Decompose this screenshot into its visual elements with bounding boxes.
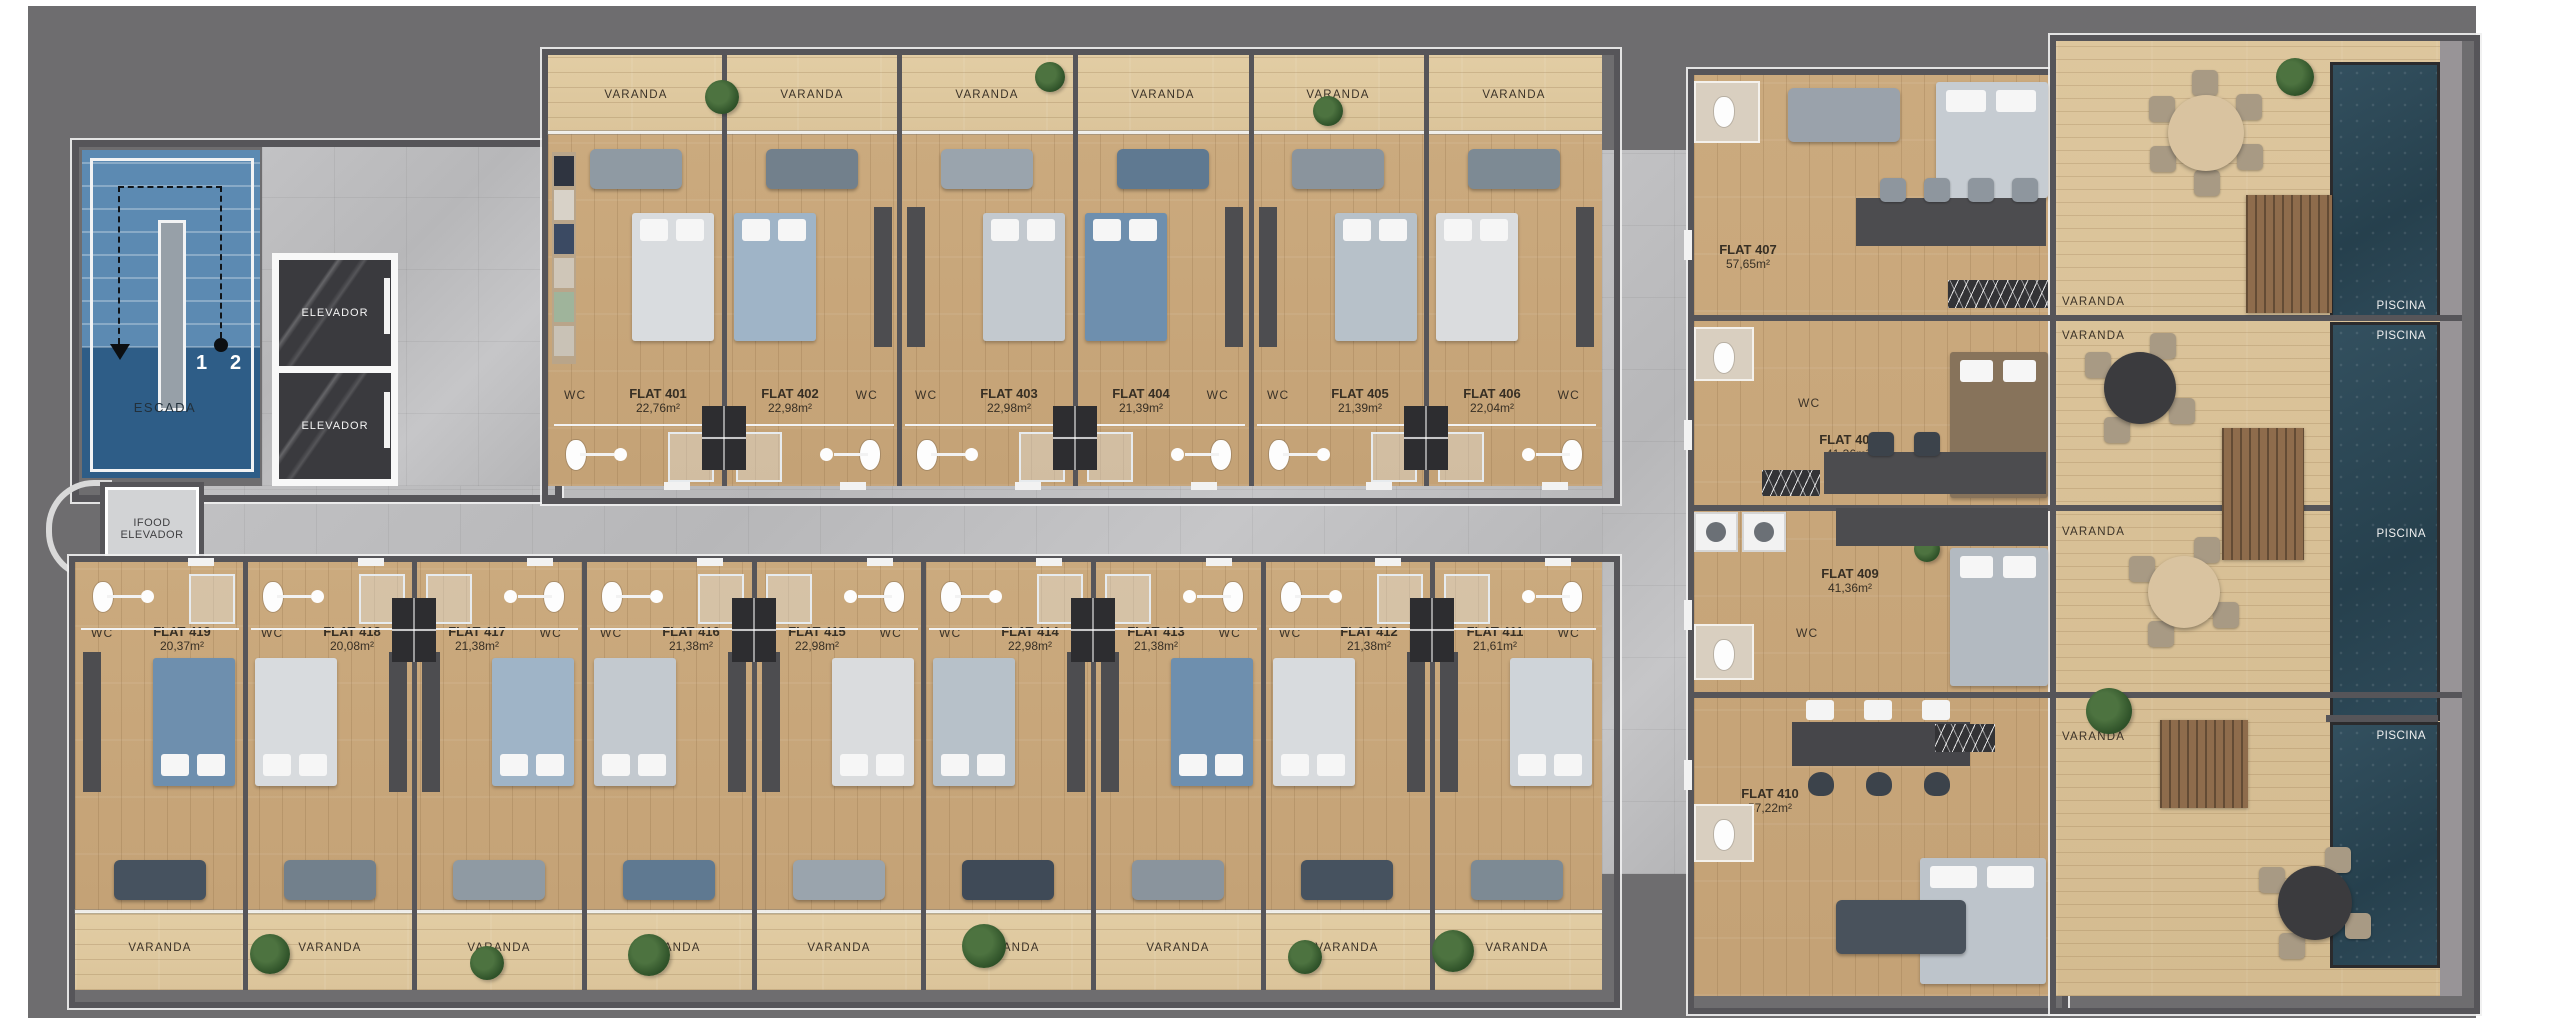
- plant: [1288, 940, 1322, 974]
- toilet: [1714, 640, 1734, 670]
- bed: [1510, 658, 1592, 786]
- bath-partition: [420, 628, 578, 630]
- wardrobe-linen: [554, 326, 574, 356]
- flat-area-label: 22,04m²: [1447, 401, 1537, 415]
- pool-divider-wall: [2326, 715, 2438, 722]
- wardrobe-linen: [554, 258, 574, 288]
- varanda-label: VARANDA: [2062, 526, 2140, 540]
- piscina-label: PISCINA: [2334, 330, 2426, 344]
- sink-dot: [1329, 590, 1342, 603]
- chair: [2194, 170, 2220, 196]
- kitchen-counter: [1836, 508, 2048, 546]
- door-gap: [1542, 482, 1568, 490]
- toilet: [1714, 97, 1734, 127]
- door-gap: [1366, 482, 1392, 490]
- kitchen-counter: [1067, 652, 1085, 792]
- sofa: [453, 860, 545, 900]
- sink-line: [834, 453, 868, 456]
- bath-partition: [251, 628, 409, 630]
- bath-partition: [905, 424, 1069, 426]
- flat-label: FLAT 401: [613, 386, 703, 401]
- door-gap: [664, 482, 690, 490]
- sink-dot: [1317, 448, 1330, 461]
- sink-dot: [141, 590, 154, 603]
- flat-area-label: 22,98m²: [772, 639, 862, 653]
- flat-area-label: 20,08m²: [307, 639, 397, 653]
- flat-area-label: 22,98m²: [964, 401, 1054, 415]
- bed: [933, 658, 1015, 786]
- pillow: [1444, 219, 1472, 241]
- door-gap: [1015, 482, 1041, 490]
- kitchen-counter: [1407, 652, 1425, 792]
- flat-area-label: 21,61m²: [1450, 639, 1540, 653]
- door-gap: [188, 558, 214, 566]
- chair: [1924, 772, 1950, 796]
- stairs-handrail: [158, 220, 186, 411]
- flat-label: FLAT 403: [964, 386, 1054, 401]
- flat-label: FLAT 418: [307, 624, 397, 639]
- door-gap: [1206, 558, 1232, 566]
- pillow: [161, 754, 189, 776]
- kitchen-counter: [762, 652, 780, 792]
- pillow: [941, 754, 969, 776]
- stairs-start-dot: [214, 338, 228, 352]
- plant: [705, 80, 739, 114]
- pillow: [263, 754, 291, 776]
- sink-line: [1295, 595, 1329, 598]
- sofa: [1468, 149, 1560, 189]
- pillow: [1343, 219, 1371, 241]
- flat-area-label: 21,38m²: [432, 639, 522, 653]
- flat-label: FLAT 407: [1700, 242, 1796, 257]
- kitchen-counter: [874, 207, 892, 347]
- flat-area-label: 21,38m²: [1324, 639, 1414, 653]
- pillow: [1480, 219, 1508, 241]
- piscina-label: PISCINA: [2334, 300, 2426, 314]
- pillow: [197, 754, 225, 776]
- flat-label: FLAT 402: [745, 386, 835, 401]
- wc-label: WC: [564, 388, 592, 402]
- divider-wall: [582, 562, 587, 990]
- piscina-label: PISCINA: [2334, 528, 2426, 542]
- divider-wall: [921, 562, 926, 990]
- wardrobe-linen: [554, 156, 574, 186]
- door-gap: [358, 558, 384, 566]
- pillow: [676, 219, 704, 241]
- piscina-label: PISCINA: [2334, 730, 2426, 744]
- sink-line: [1536, 453, 1570, 456]
- flat-label: FLAT 410: [1722, 786, 1818, 801]
- sink-line: [277, 595, 311, 598]
- bed: [255, 658, 337, 786]
- varanda-label: VARANDA: [1313, 942, 1381, 956]
- stair-number: 1: [196, 352, 212, 376]
- bed: [594, 658, 676, 786]
- pillow: [1518, 754, 1546, 776]
- shower: [189, 574, 235, 624]
- bath-partition: [760, 628, 918, 630]
- stairs-path: [118, 186, 222, 190]
- pillow: [2003, 556, 2036, 578]
- stairs-path: [220, 186, 224, 338]
- bath-partition: [554, 424, 718, 426]
- wc-label: WC: [1558, 388, 1586, 402]
- wardrobe-linen: [554, 292, 574, 322]
- toilet: [1714, 820, 1734, 850]
- pillow: [1930, 866, 1977, 888]
- bed: [1950, 548, 2048, 686]
- varanda-label: VARANDA: [1483, 942, 1551, 956]
- sink-line: [858, 595, 892, 598]
- sink-dot: [1522, 448, 1535, 461]
- drying-rack: [1948, 280, 2048, 308]
- sink-dot: [989, 590, 1002, 603]
- varanda-label: VARANDA: [778, 89, 846, 103]
- service-elevator-label: IFOOD: [133, 517, 170, 529]
- wc-label: WC: [856, 388, 884, 402]
- bed: [1436, 213, 1518, 341]
- bed: [632, 213, 714, 341]
- divider-wall: [1249, 55, 1254, 486]
- flat-area-label: 21,38m²: [646, 639, 736, 653]
- flat-area-label: 41,36m²: [1802, 581, 1898, 595]
- deck-slats: [2222, 428, 2304, 560]
- sink-line: [955, 595, 989, 598]
- wardrobe: [552, 152, 576, 364]
- sink-dot: [614, 448, 627, 461]
- flat-label: FLAT 414: [985, 624, 1075, 639]
- sink-dot: [1522, 590, 1535, 603]
- flat-area-label: 22,98m²: [985, 639, 1075, 653]
- sink-line: [1197, 595, 1231, 598]
- sofa: [962, 860, 1054, 900]
- plant: [628, 934, 670, 976]
- plant: [1432, 930, 1474, 972]
- sofa: [1132, 860, 1224, 900]
- kitchen-counter: [1225, 207, 1243, 347]
- door-gap: [697, 558, 723, 566]
- pillow: [299, 754, 327, 776]
- kitchen-counter: [728, 652, 746, 792]
- washer-door: [1706, 522, 1726, 542]
- varanda-label: VARANDA: [602, 89, 670, 103]
- bar-stool: [1806, 700, 1834, 720]
- sofa: [114, 860, 206, 900]
- door-gap: [527, 558, 553, 566]
- varanda-label: VARANDA: [2062, 330, 2140, 344]
- wardrobe-linen: [554, 190, 574, 220]
- escada-label: ESCADA: [100, 400, 230, 416]
- varanda-label: VARANDA: [296, 942, 364, 956]
- chair: [1880, 178, 1906, 202]
- toilet: [1714, 343, 1734, 373]
- sink-line: [931, 453, 965, 456]
- door-gap: [1684, 760, 1692, 790]
- sink-dot: [1183, 590, 1196, 603]
- pillow: [1129, 219, 1157, 241]
- sofa: [1301, 860, 1393, 900]
- flat-label: FLAT 417: [432, 624, 522, 639]
- flat-label: FLAT 416: [646, 624, 736, 639]
- stove: [702, 406, 746, 470]
- bath-partition: [1099, 628, 1257, 630]
- varanda-label: VARANDA: [1129, 89, 1197, 103]
- flat-label: FLAT 413: [1111, 624, 1201, 639]
- wc-label: WC: [1207, 388, 1235, 402]
- sink-line: [580, 453, 614, 456]
- bed: [153, 658, 235, 786]
- sofa: [766, 149, 858, 189]
- chair: [1808, 772, 1834, 796]
- varanda-label: VARANDA: [2062, 731, 2140, 745]
- door-gap: [1036, 558, 1062, 566]
- chair: [2192, 70, 2218, 96]
- exterior-wall: [2440, 41, 2462, 996]
- divider-wall: [1694, 692, 2462, 698]
- bed: [492, 658, 574, 786]
- sink-dot: [844, 590, 857, 603]
- flat-area-label: 21,38m²: [1111, 639, 1201, 653]
- plant: [1313, 96, 1343, 126]
- sink-line: [1185, 453, 1219, 456]
- washer: [1742, 512, 1786, 552]
- pillow: [1093, 219, 1121, 241]
- bed: [1085, 213, 1167, 341]
- sink-dot: [965, 448, 978, 461]
- divider-wall: [1261, 562, 1266, 990]
- bed: [1273, 658, 1355, 786]
- sofa: [284, 860, 376, 900]
- deck-slats: [2160, 720, 2248, 808]
- varanda-label: VARANDA: [126, 942, 194, 956]
- sink-line: [616, 595, 650, 598]
- bath-partition: [1269, 628, 1427, 630]
- plant: [2086, 688, 2132, 734]
- pillow: [1960, 556, 1993, 578]
- elevator-door: [384, 278, 390, 334]
- flat-area-label: 22,76m²: [613, 401, 703, 415]
- flat-label: FLAT 419: [137, 624, 227, 639]
- pillow: [1179, 754, 1207, 776]
- bed: [983, 213, 1065, 341]
- sink-dot: [820, 448, 833, 461]
- flat-area-label: 22,98m²: [745, 401, 835, 415]
- bath-partition: [1438, 628, 1596, 630]
- stove: [1404, 406, 1448, 470]
- pillow: [1317, 754, 1345, 776]
- sink-dot: [311, 590, 324, 603]
- stove: [1071, 598, 1115, 662]
- chair: [1914, 432, 1940, 456]
- sofa: [1117, 149, 1209, 189]
- deck-slats: [2246, 195, 2332, 313]
- door-gap: [1545, 558, 1571, 566]
- pillow: [778, 219, 806, 241]
- pillow: [1215, 754, 1243, 776]
- bed: [1171, 658, 1253, 786]
- flat-area-label: 21,39m²: [1096, 401, 1186, 415]
- plant: [470, 946, 504, 980]
- pillow: [638, 754, 666, 776]
- elevator-shaft: ELEVADOR: [272, 366, 398, 486]
- door-gap: [1375, 558, 1401, 566]
- sink-line: [1283, 453, 1317, 456]
- varanda-label: VARANDA: [953, 89, 1021, 103]
- pillow: [1946, 90, 1986, 112]
- plant: [250, 934, 290, 974]
- round-table: [2104, 352, 2176, 424]
- bath-partition: [81, 628, 239, 630]
- pillow: [991, 219, 1019, 241]
- stove: [392, 598, 436, 662]
- pillow: [742, 219, 770, 241]
- door-gap: [1191, 482, 1217, 490]
- bar-stool: [1922, 700, 1950, 720]
- sink-dot: [1171, 448, 1184, 461]
- pool: [2330, 62, 2440, 321]
- kitchen-counter: [1824, 452, 2046, 494]
- pillow: [876, 754, 904, 776]
- flat-label: FLAT 404: [1096, 386, 1186, 401]
- flat-label: FLAT 406: [1447, 386, 1537, 401]
- kitchen-counter: [907, 207, 925, 347]
- pillow: [1281, 754, 1309, 776]
- pillow: [536, 754, 564, 776]
- pillow: [640, 219, 668, 241]
- wc-label: WC: [1267, 388, 1295, 402]
- wc-label: WC: [1796, 626, 1824, 640]
- wc-label: WC: [915, 388, 943, 402]
- floor-plan-screenshot: { "colors": { "canvas": "#6e6d6f", "corr…: [0, 0, 2560, 1024]
- pillow: [2003, 360, 2036, 382]
- sofa: [623, 860, 715, 900]
- bath-partition: [1432, 424, 1596, 426]
- sofa: [1788, 88, 1900, 142]
- pillow: [602, 754, 630, 776]
- plant: [962, 924, 1006, 968]
- chair: [1866, 772, 1892, 796]
- flat-area-label: 21,39m²: [1315, 401, 1405, 415]
- flat-label: FLAT 412: [1324, 624, 1414, 639]
- stairwell: [82, 150, 260, 478]
- divider-wall: [897, 55, 902, 486]
- bath-partition: [1257, 424, 1421, 426]
- bed: [734, 213, 816, 341]
- wardrobe-linen: [554, 224, 574, 254]
- kitchen-counter: [1259, 207, 1277, 347]
- kitchen-counter: [1856, 198, 2046, 246]
- door-gap: [1684, 600, 1692, 630]
- stairs-path: [118, 186, 122, 344]
- bath-partition: [730, 424, 894, 426]
- bed: [1335, 213, 1417, 341]
- kitchen-counter: [83, 652, 101, 792]
- wc-label: WC: [1798, 396, 1826, 410]
- bath-partition: [590, 628, 748, 630]
- elevator-door: [384, 392, 390, 448]
- stove: [1410, 598, 1454, 662]
- flat-area-label: 57,65m²: [1700, 257, 1796, 271]
- bar-stool: [1864, 700, 1892, 720]
- sink-line: [518, 595, 552, 598]
- varanda-label: VARANDA: [1144, 942, 1212, 956]
- pillow: [977, 754, 1005, 776]
- flat-label: FLAT 415: [772, 624, 862, 639]
- pillow: [500, 754, 528, 776]
- flat-label: FLAT 411: [1450, 624, 1540, 639]
- pillow: [840, 754, 868, 776]
- divider-wall: [1694, 315, 2462, 321]
- stair-number: 2: [230, 352, 246, 376]
- varanda-label: VARANDA: [2062, 296, 2140, 310]
- pillow: [1960, 360, 1993, 382]
- sink-line: [107, 595, 141, 598]
- sink-dot: [650, 590, 663, 603]
- sofa: [941, 149, 1033, 189]
- varanda-label: VARANDA: [1480, 89, 1548, 103]
- chair: [1868, 432, 1894, 456]
- varanda-label: VARANDA: [805, 942, 873, 956]
- chair: [1924, 178, 1950, 202]
- drying-rack: [1762, 470, 1820, 496]
- elevator-shaft: ELEVADOR: [272, 253, 398, 373]
- bath-partition: [1081, 424, 1245, 426]
- door-gap: [1684, 230, 1692, 260]
- bed: [832, 658, 914, 786]
- kitchen-counter: [1440, 652, 1458, 792]
- washer-door: [1754, 522, 1774, 542]
- sofa: [1292, 149, 1384, 189]
- sofa: [1471, 860, 1563, 900]
- pillow: [1027, 219, 1055, 241]
- service-elevator-label: ELEVADOR: [120, 529, 183, 541]
- kitchen-counter: [1101, 652, 1119, 792]
- washer: [1694, 512, 1738, 552]
- kitchen-counter: [389, 652, 407, 792]
- chair: [1968, 178, 1994, 202]
- door-gap: [867, 558, 893, 566]
- sink-dot: [504, 590, 517, 603]
- plant: [2276, 58, 2314, 96]
- drying-rack: [1935, 724, 1995, 752]
- flat-label: FLAT 409: [1802, 566, 1898, 581]
- door-gap: [1684, 420, 1692, 450]
- sofa: [1836, 900, 1966, 954]
- pillow: [1987, 866, 2034, 888]
- pillow: [1379, 219, 1407, 241]
- stove: [732, 598, 776, 662]
- bath-partition: [929, 628, 1087, 630]
- chair: [2012, 178, 2038, 202]
- kitchen-counter: [1576, 207, 1594, 347]
- pillow: [1554, 754, 1582, 776]
- plant: [1035, 62, 1065, 92]
- round-table: [2278, 866, 2352, 940]
- pillow: [1996, 90, 2036, 112]
- flat-label: FLAT 405: [1315, 386, 1405, 401]
- flat-area-label: 20,37m²: [137, 639, 227, 653]
- kitchen-counter: [422, 652, 440, 792]
- pool: [2330, 322, 2440, 721]
- divider-wall: [243, 562, 248, 990]
- round-table: [2168, 95, 2244, 171]
- sofa: [590, 149, 682, 189]
- stairs-arrow-icon: [110, 344, 130, 360]
- sofa: [793, 860, 885, 900]
- door-gap: [840, 482, 866, 490]
- stove: [1053, 406, 1097, 470]
- sink-line: [1536, 595, 1570, 598]
